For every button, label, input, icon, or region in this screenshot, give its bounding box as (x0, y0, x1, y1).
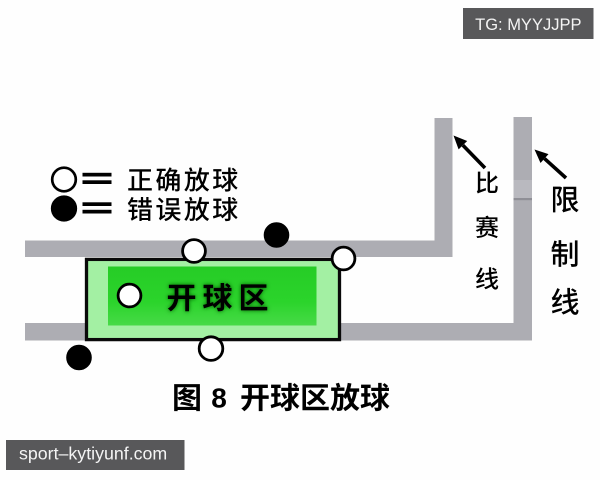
svg-text:sport–kytiyunf.com: sport–kytiyunf.com (19, 444, 167, 464)
svg-text:8: 8 (211, 383, 227, 414)
svg-text:TG: MYYJJPP: TG: MYYJJPP (475, 16, 581, 34)
